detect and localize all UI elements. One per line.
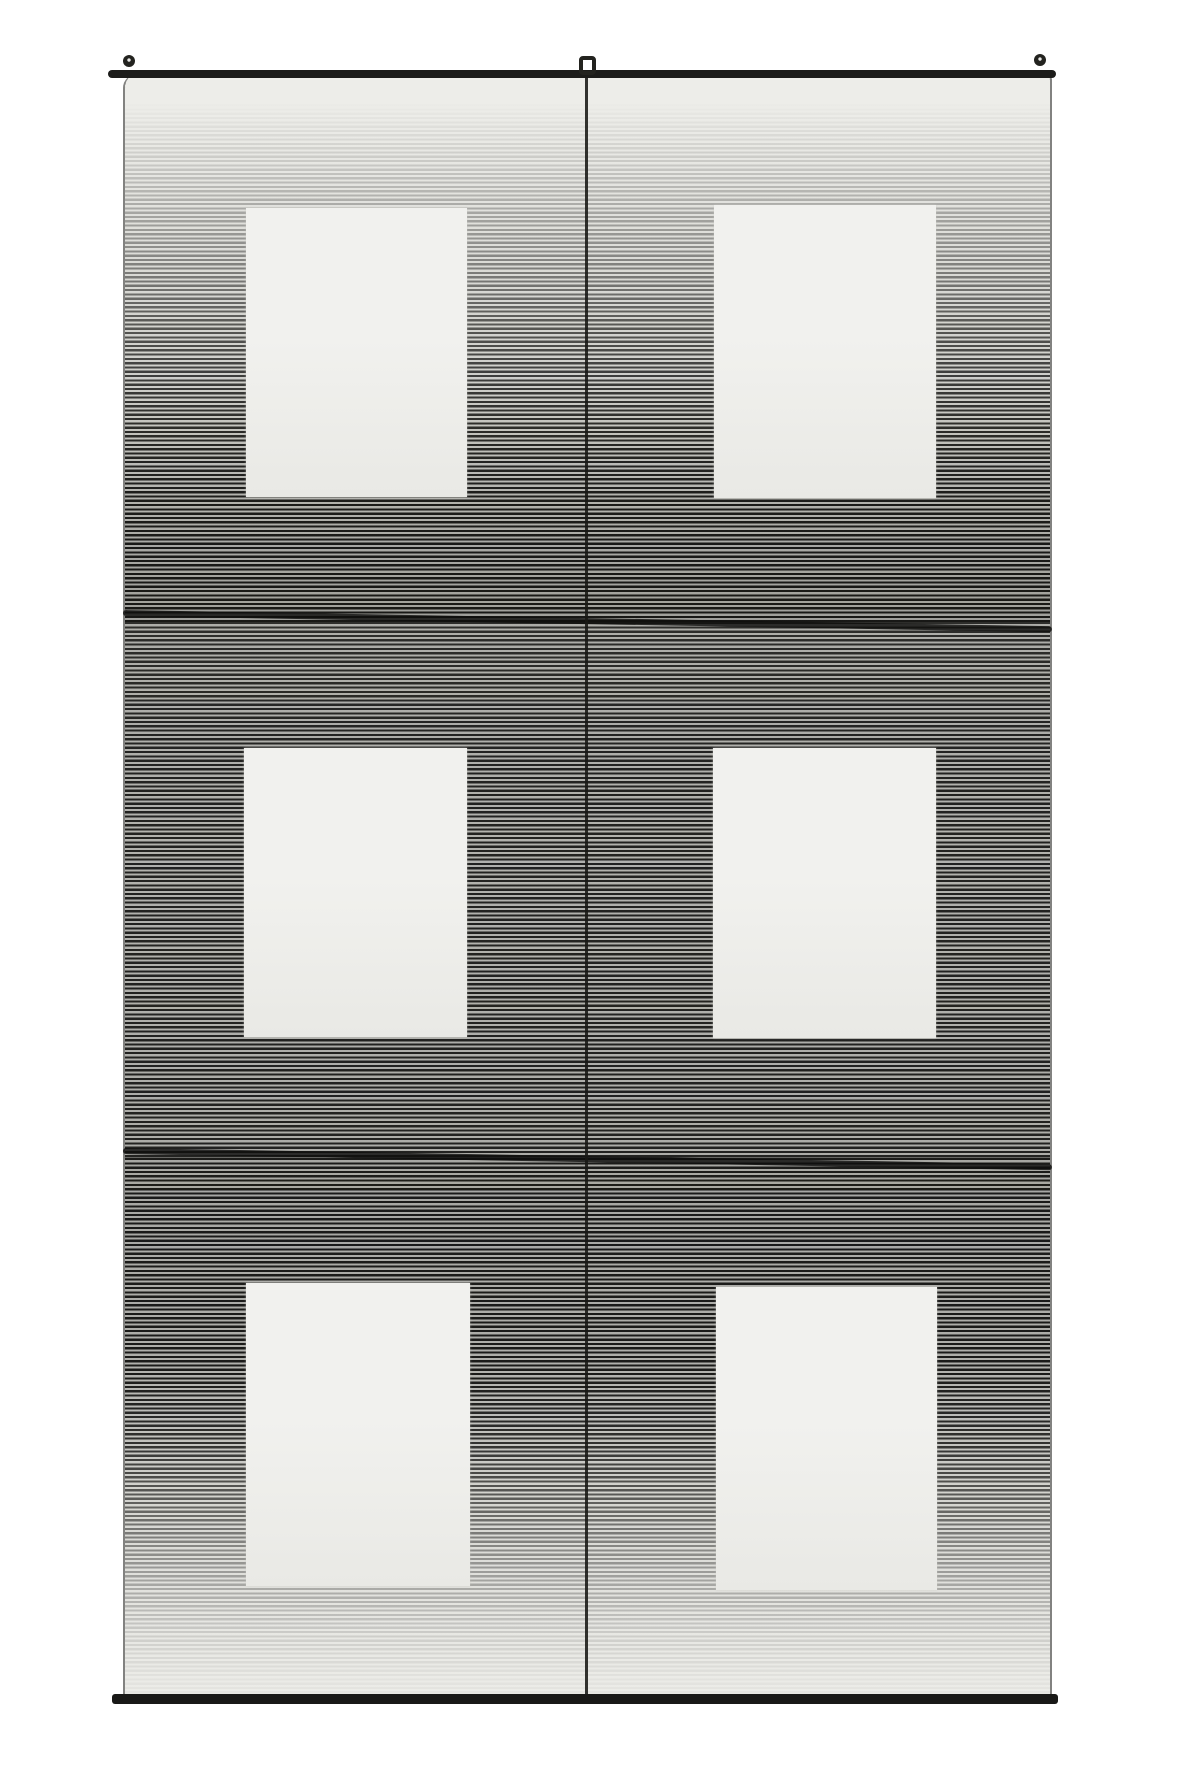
white-window-r3c2 [716, 1287, 937, 1590]
white-window-r2c1 [244, 748, 467, 1037]
bottom-hem-bar [112, 1694, 1058, 1704]
rod-knob-left [123, 55, 135, 67]
artwork-photograph [0, 0, 1181, 1772]
white-window-r3c1 [246, 1283, 470, 1586]
center-warp-line [585, 78, 588, 1700]
white-window-r1c1 [246, 208, 467, 497]
white-window-r2c2 [713, 748, 936, 1038]
hanging-loop [579, 56, 596, 75]
rod-knob-right [1034, 54, 1046, 66]
white-window-r1c2 [714, 205, 936, 498]
